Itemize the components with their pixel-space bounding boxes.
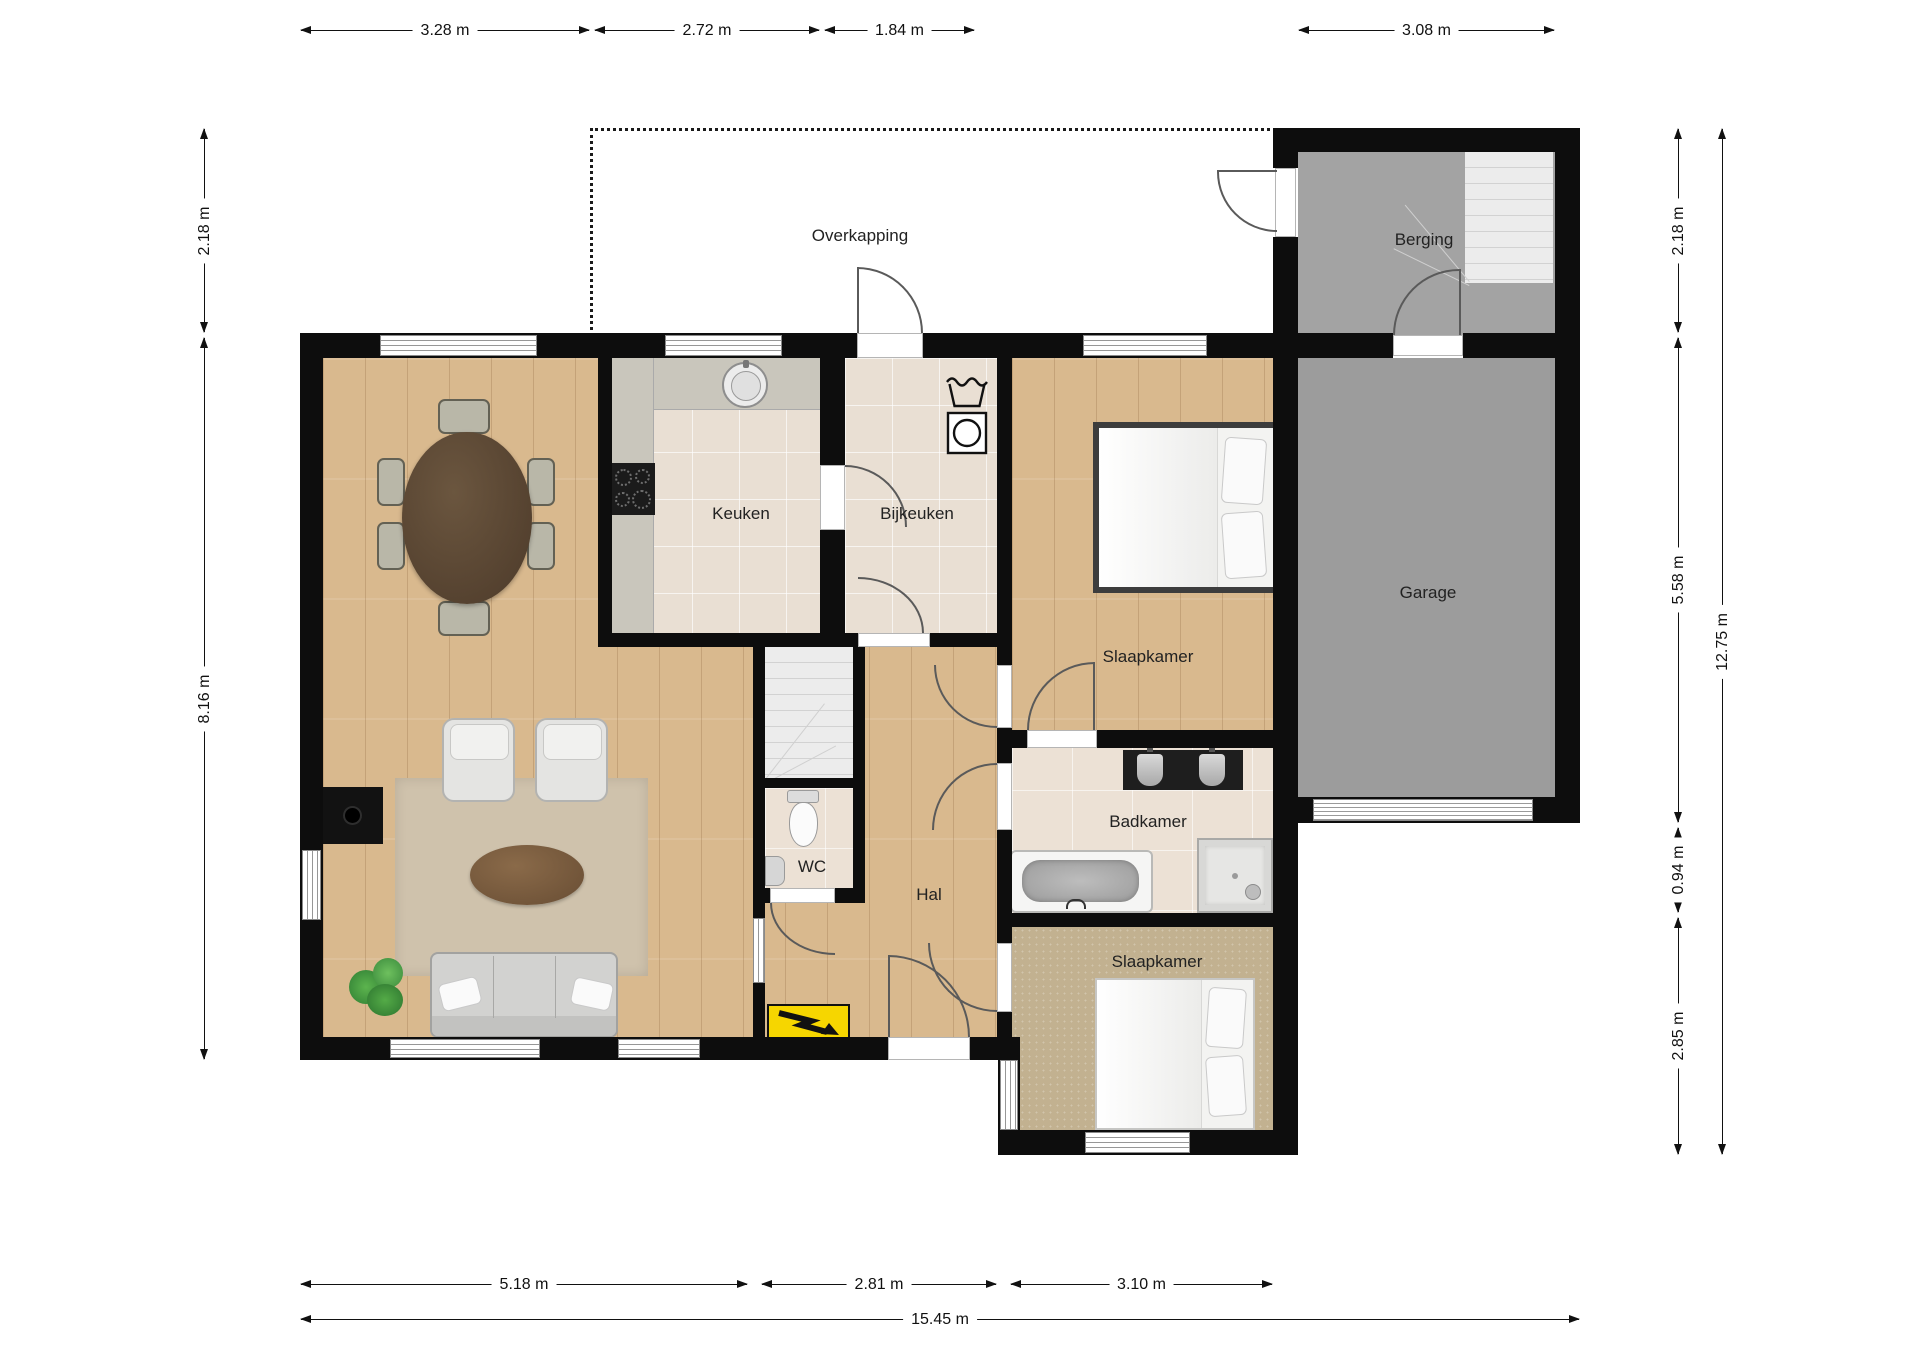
dimension-right-3: 0.94 m bbox=[1672, 827, 1685, 913]
dimension-label: 1.84 m bbox=[867, 22, 932, 40]
sink-icon bbox=[722, 362, 768, 408]
door bbox=[997, 763, 1012, 830]
dimension-left-2: 8.16 m bbox=[198, 337, 211, 1060]
dimension-right-2: 5.58 m bbox=[1672, 337, 1685, 823]
door bbox=[997, 943, 1012, 1012]
window bbox=[1000, 1060, 1018, 1130]
bathtub-icon bbox=[1010, 850, 1153, 913]
dimension-label: 2.85 m bbox=[1670, 1004, 1688, 1069]
washbasin-icon bbox=[765, 856, 785, 886]
window bbox=[380, 335, 537, 356]
front-door bbox=[888, 1037, 970, 1060]
dimension-right-1: 2.18 m bbox=[1672, 128, 1685, 333]
dimension-label: 0.94 m bbox=[1670, 838, 1688, 903]
room-label-hal: Hal bbox=[916, 885, 942, 905]
dimension-label: 3.28 m bbox=[413, 22, 478, 40]
room-label-slaapkamer-top: Slaapkamer bbox=[1103, 647, 1194, 667]
wall bbox=[753, 640, 765, 918]
washing-machine-icon bbox=[945, 410, 989, 456]
dining-chair bbox=[527, 458, 555, 506]
stairs-icon bbox=[1465, 152, 1553, 283]
armchair bbox=[442, 718, 515, 802]
wall bbox=[997, 1012, 1012, 1037]
dimension-top-4: 3.08 m bbox=[1298, 24, 1555, 37]
cooktop-icon bbox=[610, 463, 655, 515]
dimension-label: 3.08 m bbox=[1394, 22, 1459, 40]
garage-door bbox=[1313, 799, 1533, 821]
wall bbox=[300, 358, 323, 1060]
wall bbox=[1273, 333, 1393, 358]
room-label-slaapkamer-bottom: Slaapkamer bbox=[1112, 952, 1203, 972]
wall bbox=[753, 983, 765, 1037]
dimension-label: 5.18 m bbox=[492, 1276, 557, 1294]
door bbox=[857, 333, 923, 358]
wall bbox=[997, 913, 1273, 927]
door bbox=[770, 888, 835, 903]
floor-plan: Overkapping Berging Garage Keuken Bijkeu… bbox=[0, 0, 1920, 1358]
shower-icon bbox=[1197, 838, 1273, 913]
overkapping-outline bbox=[590, 128, 1276, 336]
dining-chair bbox=[377, 522, 405, 570]
interior-window bbox=[753, 918, 765, 983]
dimension-label: 8.16 m bbox=[196, 666, 214, 731]
dimension-bottom-1: 5.18 m bbox=[300, 1278, 748, 1291]
window bbox=[390, 1039, 540, 1058]
dimension-left-1: 2.18 m bbox=[198, 128, 211, 333]
door bbox=[858, 633, 930, 647]
wall bbox=[820, 530, 845, 633]
wall bbox=[765, 778, 853, 788]
wall bbox=[997, 728, 1012, 763]
floor-garage bbox=[1298, 358, 1555, 797]
wall bbox=[820, 358, 845, 465]
room-label-overkapping: Overkapping bbox=[812, 226, 908, 246]
dimension-bottom-2: 2.81 m bbox=[761, 1278, 997, 1291]
dining-chair bbox=[438, 399, 490, 434]
dining-table bbox=[402, 432, 532, 604]
wall bbox=[1012, 730, 1027, 748]
window bbox=[1083, 335, 1207, 356]
room-label-wc: WC bbox=[798, 857, 826, 877]
dimension-bottom-3: 3.10 m bbox=[1010, 1278, 1273, 1291]
dimension-label: 12.75 m bbox=[1714, 605, 1732, 679]
wall bbox=[598, 358, 612, 633]
sofa bbox=[430, 952, 618, 1038]
dimension-label: 2.81 m bbox=[847, 1276, 912, 1294]
double-washbasin-icon bbox=[1123, 750, 1243, 790]
wall bbox=[1273, 152, 1298, 168]
dimension-top-1: 3.28 m bbox=[300, 24, 590, 37]
coffee-table bbox=[470, 845, 584, 905]
dimension-bottom-total: 15.45 m bbox=[300, 1313, 1580, 1326]
electric-meter-icon bbox=[767, 1004, 850, 1041]
wall bbox=[997, 358, 1012, 665]
room-label-berging: Berging bbox=[1395, 230, 1454, 250]
toilet-icon bbox=[789, 802, 818, 847]
window bbox=[665, 335, 782, 356]
bed bbox=[1093, 422, 1273, 593]
dimension-label: 2.18 m bbox=[196, 198, 214, 263]
dimension-right-4: 2.85 m bbox=[1672, 917, 1685, 1155]
dimension-label: 2.18 m bbox=[1670, 198, 1688, 263]
stairs-icon bbox=[765, 647, 853, 778]
dimension-label: 2.72 m bbox=[675, 22, 740, 40]
dining-chair bbox=[438, 601, 490, 636]
washtub-icon bbox=[945, 373, 989, 409]
room-label-garage: Garage bbox=[1400, 583, 1457, 603]
window bbox=[1085, 1132, 1190, 1153]
room-label-bijkeuken: Bijkeuken bbox=[880, 504, 954, 524]
dining-chair bbox=[377, 458, 405, 506]
dimension-label: 3.10 m bbox=[1109, 1276, 1174, 1294]
bed bbox=[1095, 978, 1255, 1130]
wall bbox=[1555, 152, 1580, 823]
door bbox=[820, 465, 845, 530]
dimension-top-2: 2.72 m bbox=[594, 24, 820, 37]
fireplace-icon bbox=[323, 787, 383, 844]
dimension-label: 5.58 m bbox=[1670, 548, 1688, 613]
wall bbox=[1463, 333, 1580, 358]
wall bbox=[930, 633, 1012, 647]
wall bbox=[598, 633, 865, 647]
dimension-right-total: 12.75 m bbox=[1716, 128, 1729, 1155]
wall bbox=[1273, 358, 1298, 1155]
wall bbox=[1097, 730, 1273, 748]
wall bbox=[853, 640, 865, 903]
door bbox=[1275, 168, 1296, 237]
dimension-label: 15.45 m bbox=[903, 1311, 977, 1329]
room-label-keuken: Keuken bbox=[712, 504, 770, 524]
door bbox=[1027, 730, 1097, 748]
dimension-top-3: 1.84 m bbox=[824, 24, 975, 37]
door bbox=[1393, 335, 1463, 356]
wall bbox=[1273, 128, 1580, 152]
plant-icon bbox=[347, 958, 411, 1018]
room-label-badkamer: Badkamer bbox=[1109, 812, 1186, 832]
door bbox=[997, 665, 1012, 728]
window bbox=[302, 850, 321, 920]
wall bbox=[1273, 237, 1298, 333]
window bbox=[618, 1039, 700, 1058]
armchair bbox=[535, 718, 608, 802]
